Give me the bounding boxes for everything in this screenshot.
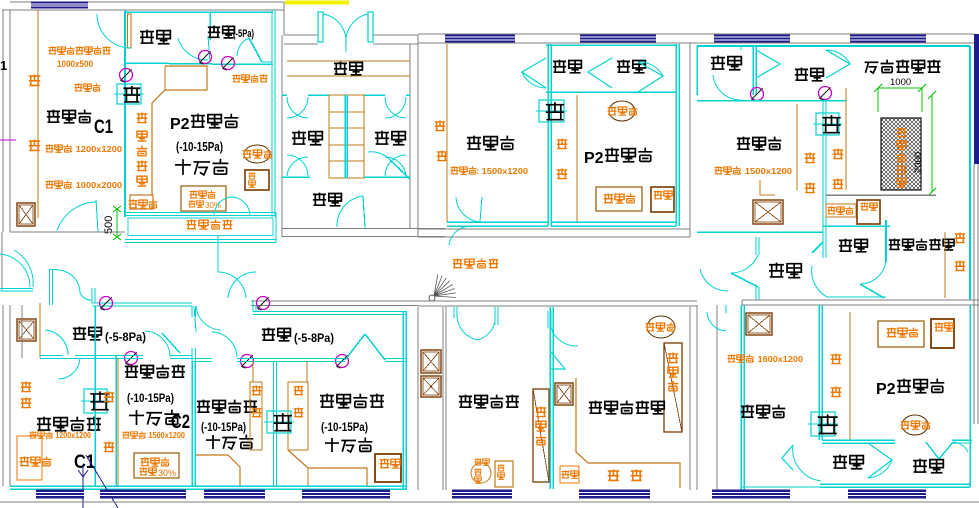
svg-text:(-10-15Pa): (-10-15Pa): [176, 140, 223, 154]
svg-text:1000x500: 1000x500: [57, 59, 93, 69]
svg-text:30%: 30%: [205, 201, 221, 210]
svg-text:: 1200x1200: : 1200x1200: [51, 430, 91, 440]
svg-text:(-5-8Pa): (-5-8Pa): [294, 331, 334, 345]
svg-text:: 1600x1200: : 1600x1200: [752, 354, 803, 364]
svg-text:(-10-15Pa): (-10-15Pa): [127, 391, 174, 405]
svg-text:C1: C1: [74, 452, 95, 473]
svg-text:: 1500x1200: : 1500x1200: [476, 166, 528, 176]
svg-text:1000: 1000: [890, 77, 911, 88]
svg-text:(-5Pa): (-5Pa): [233, 28, 254, 40]
svg-text:30%: 30%: [158, 468, 176, 478]
svg-text:: 1500x1200: : 1500x1200: [739, 166, 792, 176]
svg-text:(-10-15Pa): (-10-15Pa): [321, 420, 368, 434]
svg-text:: 1500x1200: : 1500x1200: [144, 430, 185, 440]
svg-text:1: 1: [0, 58, 7, 73]
svg-text:C1: C1: [94, 117, 113, 138]
svg-text:500: 500: [103, 216, 115, 234]
svg-text:(-10-15Pa): (-10-15Pa): [201, 420, 246, 434]
svg-text:P2: P2: [876, 381, 896, 398]
svg-text:P2: P2: [584, 150, 604, 167]
svg-text:(-5-8Pa): (-5-8Pa): [105, 330, 146, 344]
svg-text:: 1000x2000: : 1000x2000: [70, 180, 122, 190]
svg-text:P2: P2: [170, 116, 190, 133]
svg-text:: 1200x1200: : 1200x1200: [70, 144, 122, 154]
svg-text:2000: 2000: [913, 152, 924, 173]
